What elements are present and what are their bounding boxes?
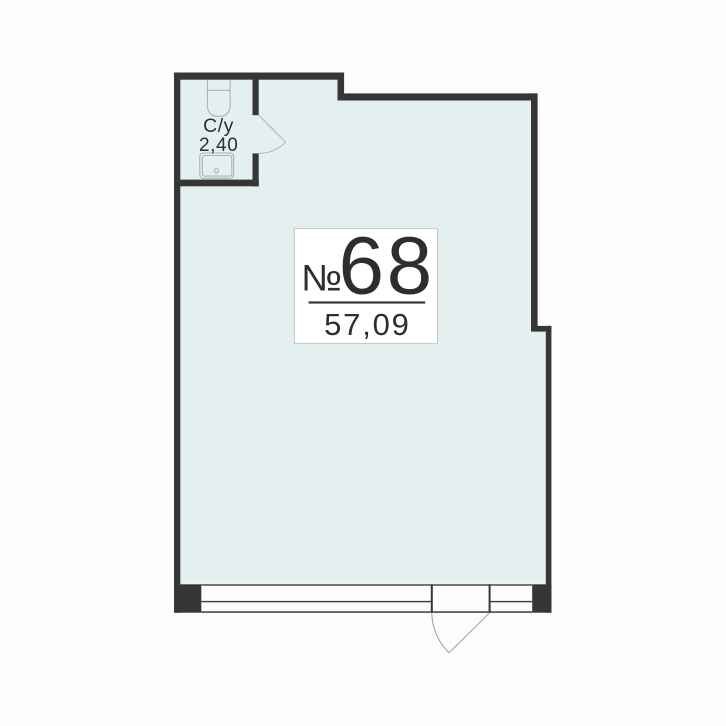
svg-text:57,09: 57,09 <box>324 307 411 342</box>
svg-text:68: 68 <box>339 221 435 312</box>
svg-text:С/у: С/у <box>203 115 234 137</box>
svg-text:№: № <box>301 258 342 299</box>
svg-text:2,40: 2,40 <box>199 135 238 156</box>
